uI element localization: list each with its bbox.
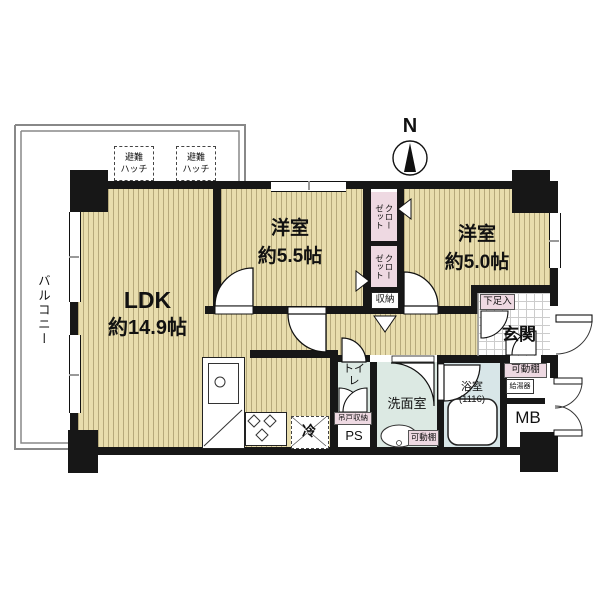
escape-hatch-2-line1: 避難 (187, 152, 205, 163)
pipe-space-text: PS (345, 429, 362, 443)
washroom-name-text: 洗面室 (387, 397, 426, 411)
movable-shelf-entrance-label: 可動棚 (511, 365, 540, 375)
bathroom-size-text: (1116) (459, 395, 485, 405)
bedroom55-area-text: 約5.5帖 (258, 247, 322, 268)
water-heater-label: 給湯器 (510, 383, 531, 391)
balcony-label-text: バルコニー (35, 274, 49, 347)
bedroom55-area: 約5.5帖 (250, 245, 330, 269)
toilet-name: トイレ (338, 368, 370, 382)
compass-n-text: N (403, 115, 417, 137)
meter-box: MB (508, 406, 548, 430)
bedroom50-area-text: 約5.0帖 (445, 253, 509, 274)
ldk-name-text: LDK (124, 288, 171, 313)
bedroom55-name: 洋室 (255, 217, 325, 241)
escape-hatch-1: 避難 ハッチ (114, 146, 154, 181)
ldk-name: LDK (100, 288, 195, 314)
bedroom50-name-text: 洋室 (458, 225, 496, 246)
movable-shelf-washroom: 可動棚 (408, 430, 439, 446)
bathroom-name-text: 浴室 (461, 381, 483, 393)
balcony-label: バルコニー (33, 260, 51, 360)
bedroom50-area: 約5.0帖 (437, 251, 517, 275)
water-heater: 給湯器 (506, 379, 534, 394)
refrigerator: 冷 (296, 423, 322, 441)
escape-hatch-1-line2: ハッチ (120, 164, 147, 175)
entrance-name-text: 玄関 (502, 326, 536, 345)
pipe-space: PS (338, 428, 370, 444)
bedroom50-name: 洋室 (442, 223, 512, 247)
movable-shelf-entrance: 可動棚 (504, 363, 547, 378)
escape-hatch-2: 避難 ハッチ (176, 146, 216, 181)
hanging-storage: 吊戸収納 (334, 412, 372, 425)
ldk-area-text: 約14.9帖 (108, 317, 187, 339)
meter-box-text: MB (515, 409, 541, 428)
bedroom55-name-text: 洋室 (271, 219, 309, 240)
entrance-name: 玄関 (494, 324, 544, 346)
movable-shelf-washroom-label: 可動棚 (411, 433, 437, 442)
toilet-name-text: トイレ (338, 363, 370, 387)
floor-plan: クロー ゼット クロー ゼット 収納 (0, 0, 600, 600)
washroom-name: 洗面室 (379, 396, 435, 412)
bathroom-name: 浴室 (448, 381, 496, 394)
compass-n: N (398, 113, 422, 139)
escape-hatch-2-line2: ハッチ (182, 164, 209, 175)
refrigerator-text: 冷 (302, 424, 316, 439)
shoe-cabinet: 下足入 (480, 294, 515, 310)
shoe-cabinet-label: 下足入 (483, 297, 512, 307)
ldk-area: 約14.9帖 (95, 316, 200, 340)
escape-hatch-1-line1: 避難 (125, 152, 143, 163)
bathroom-size: (1116) (448, 394, 496, 406)
hanging-storage-label: 吊戸収納 (338, 414, 368, 422)
